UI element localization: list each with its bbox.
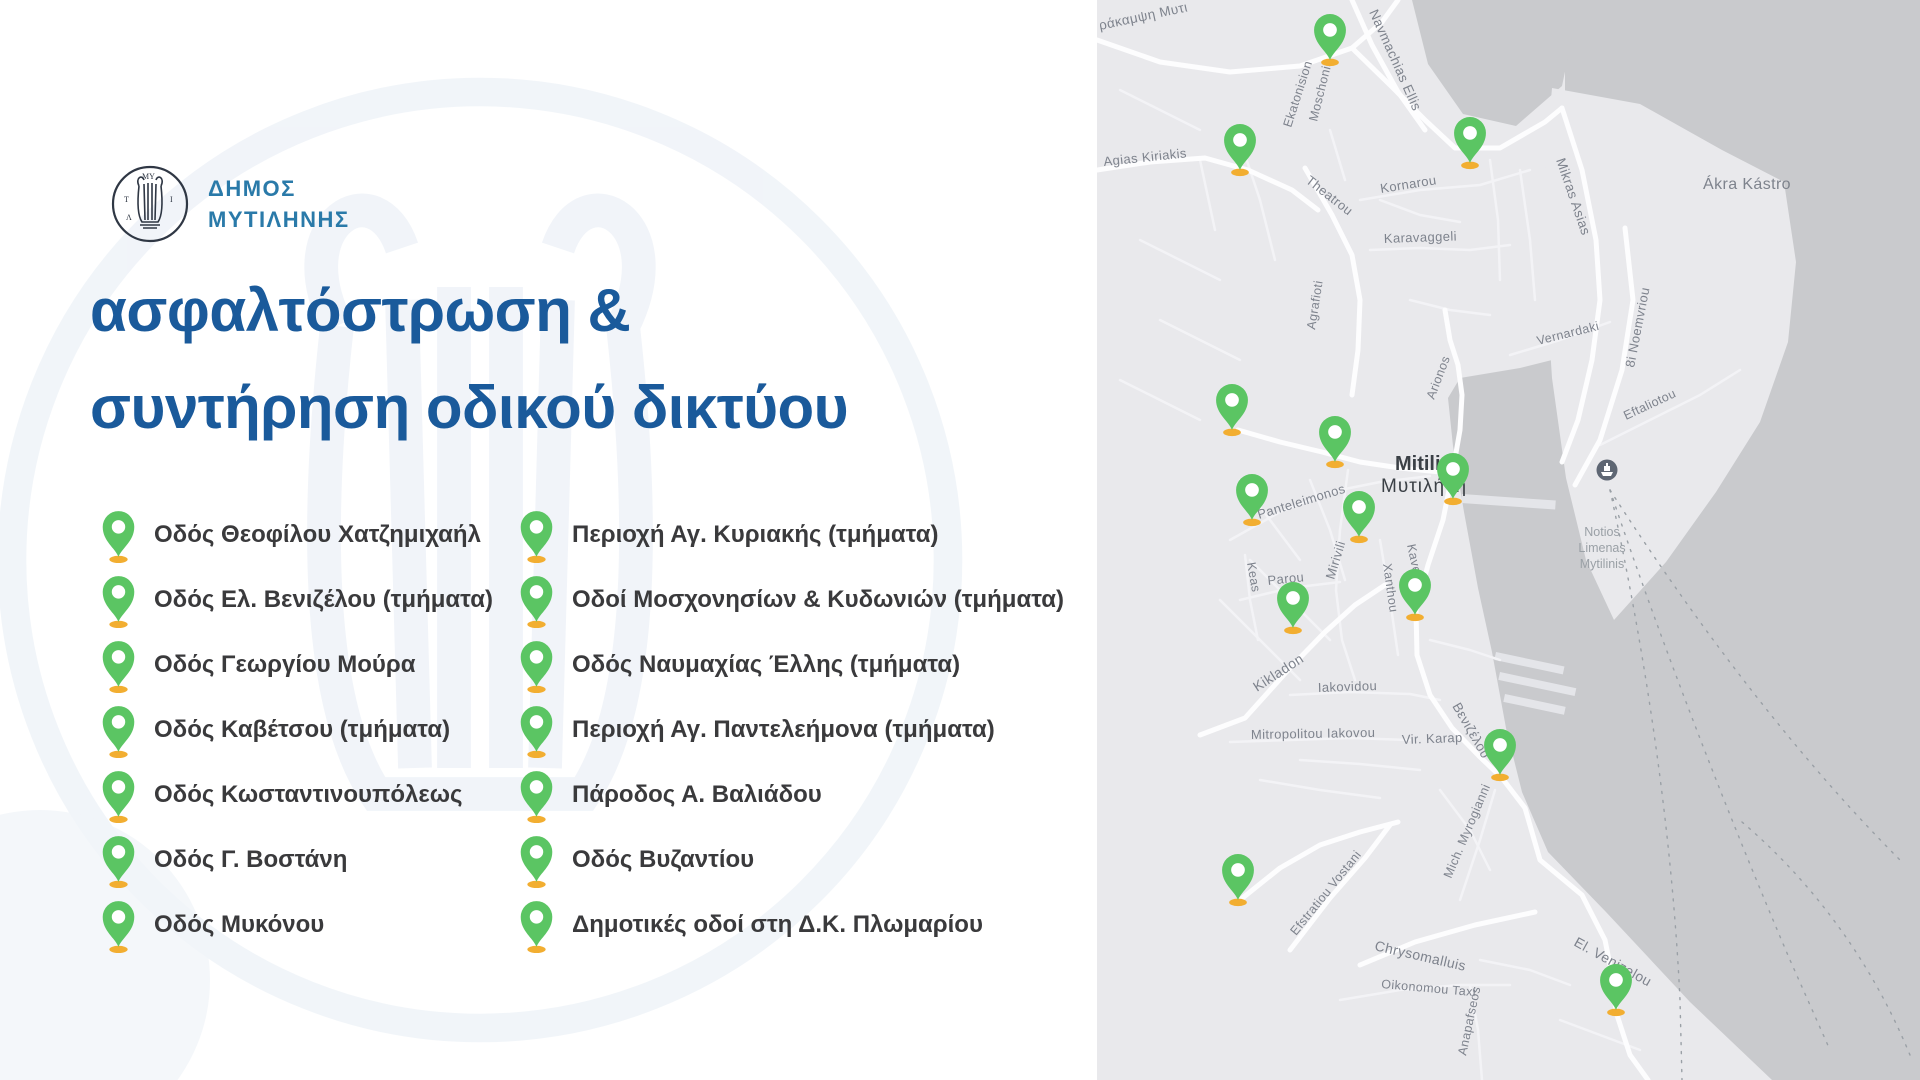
slide-root: ΜΥ Τ Ι Λ ΔΗΜΟΣ ΜΥΤΙΛΗΝΗΣ ασφαλτόστρωση &… (0, 0, 1920, 1080)
svg-text:ΜΥ: ΜΥ (142, 172, 155, 181)
street-name: Οδός Θεοφίλου Χατζημιχαήλ (154, 521, 481, 549)
street-name: Οδοί Μοσχονησίων & Κυδωνιών (τμήματα) (572, 586, 1064, 614)
street-list-item: Οδός Γ. Βοστάνη (100, 827, 493, 892)
map-street-label: Iakovidou (1318, 678, 1378, 695)
brand-name: ΔΗΜΟΣ ΜΥΤΙΛΗΝΗΣ (208, 173, 350, 235)
street-name: Οδός Καβέτσου (τμήματα) (154, 716, 450, 744)
map-street-label: Ákra Kástro (1703, 174, 1791, 193)
brand-header: ΜΥ Τ Ι Λ ΔΗΜΟΣ ΜΥΤΙΛΗΝΗΣ (108, 160, 350, 248)
brand-name-line1: ΔΗΜΟΣ (208, 173, 350, 204)
map-pin-icon (100, 572, 137, 628)
harbor-label: NotiosLimenasMytilinis (1578, 525, 1625, 571)
map-street-label: Vir. Karap (1402, 730, 1463, 747)
street-list-item: Περιοχή Αγ. Κυριακής (τμήματα) (518, 502, 1064, 567)
street-list-item: Οδός Ελ. Βενιζέλου (τμήματα) (100, 567, 493, 632)
svg-text:Τ: Τ (124, 195, 129, 204)
map-pin-icon (518, 702, 555, 758)
map-pin-icon (100, 832, 137, 888)
map-pin-icon (518, 897, 555, 953)
map-pin-icon (100, 702, 137, 758)
street-list-item: Πάροδος Α. Βαλιάδου (518, 762, 1064, 827)
map-street-label: Karavaggeli (1384, 228, 1458, 246)
street-list-item: Οδοί Μοσχονησίων & Κυδωνιών (τμήματα) (518, 567, 1064, 632)
street-list-item: Οδός Γεωργίου Μούρα (100, 632, 493, 697)
street-list-item: Δημοτικές οδοί στη Δ.Κ. Πλωμαρίου (518, 892, 1064, 957)
street-list-item: Οδός Καβέτσου (τμήματα) (100, 697, 493, 762)
street-list-item: Οδός Ναυμαχίας Έλλης (τμήματα) (518, 632, 1064, 697)
street-name: Οδός Μυκόνου (154, 911, 324, 939)
street-list-item: Οδός Βυζαντίου (518, 827, 1064, 892)
map-pin-icon (100, 637, 137, 693)
map-pin-icon (100, 767, 137, 823)
street-name: Οδός Γεωργίου Μούρα (154, 651, 416, 679)
map-canvas: ράκαμψη ΜυτιNavmachias EllisEkatonisionM… (1097, 0, 1920, 1080)
brand-name-line2: ΜΥΤΙΛΗΝΗΣ (208, 204, 350, 235)
street-list-column-1: Οδός Θεοφίλου ΧατζημιχαήλΟδός Ελ. Βενιζέ… (100, 502, 493, 957)
map-pin-icon (518, 832, 555, 888)
map-street-label: Mitropolitou Iakovou (1251, 725, 1376, 742)
street-name: Οδός Ναυμαχίας Έλλης (τμήματα) (572, 651, 960, 679)
street-name: Πάροδος Α. Βαλιάδου (572, 781, 822, 809)
street-name: Οδός Κωσταντινουπόλεως (154, 781, 463, 809)
map-pin-icon (518, 572, 555, 628)
content-panel: ΜΥ Τ Ι Λ ΔΗΜΟΣ ΜΥΤΙΛΗΝΗΣ ασφαλτόστρωση &… (0, 0, 1097, 1080)
map-pin-icon (100, 507, 137, 563)
street-name: Περιοχή Αγ. Κυριακής (τμήματα) (572, 521, 938, 549)
street-list-item: Οδός Θεοφίλου Χατζημιχαήλ (100, 502, 493, 567)
street-name: Δημοτικές οδοί στη Δ.Κ. Πλωμαρίου (572, 911, 983, 939)
street-name: Οδός Γ. Βοστάνη (154, 846, 347, 874)
ferry-icon (1597, 460, 1618, 481)
street-list-item: Περιοχή Αγ. Παντελεήμονα (τμήματα) (518, 697, 1064, 762)
street-name: Περιοχή Αγ. Παντελεήμονα (τμήματα) (572, 716, 995, 744)
street-list-item: Οδός Κωσταντινουπόλεως (100, 762, 493, 827)
map-pin-icon (518, 637, 555, 693)
street-list-column-2: Περιοχή Αγ. Κυριακής (τμήματα)Οδοί Μοσχο… (518, 502, 1064, 957)
map-panel: ράκαμψη ΜυτιNavmachias EllisEkatonisionM… (1097, 0, 1920, 1080)
municipality-coin-logo-icon: ΜΥ Τ Ι Λ (108, 160, 192, 248)
street-list-item: Οδός Μυκόνου (100, 892, 493, 957)
page-title-line2: συντήρηση οδικού δικτύου (90, 374, 848, 441)
map-pin-icon (518, 767, 555, 823)
street-name: Οδός Ελ. Βενιζέλου (τμήματα) (154, 586, 493, 614)
map-pin-icon (518, 507, 555, 563)
svg-text:Ι: Ι (170, 195, 173, 204)
svg-text:Λ: Λ (126, 213, 132, 222)
street-name: Οδός Βυζαντίου (572, 846, 754, 874)
page-title: ασφαλτόστρωση & συντήρηση οδικού δικτύου (90, 262, 848, 456)
page-title-line1: ασφαλτόστρωση & (90, 277, 630, 344)
map-pin-icon (100, 897, 137, 953)
